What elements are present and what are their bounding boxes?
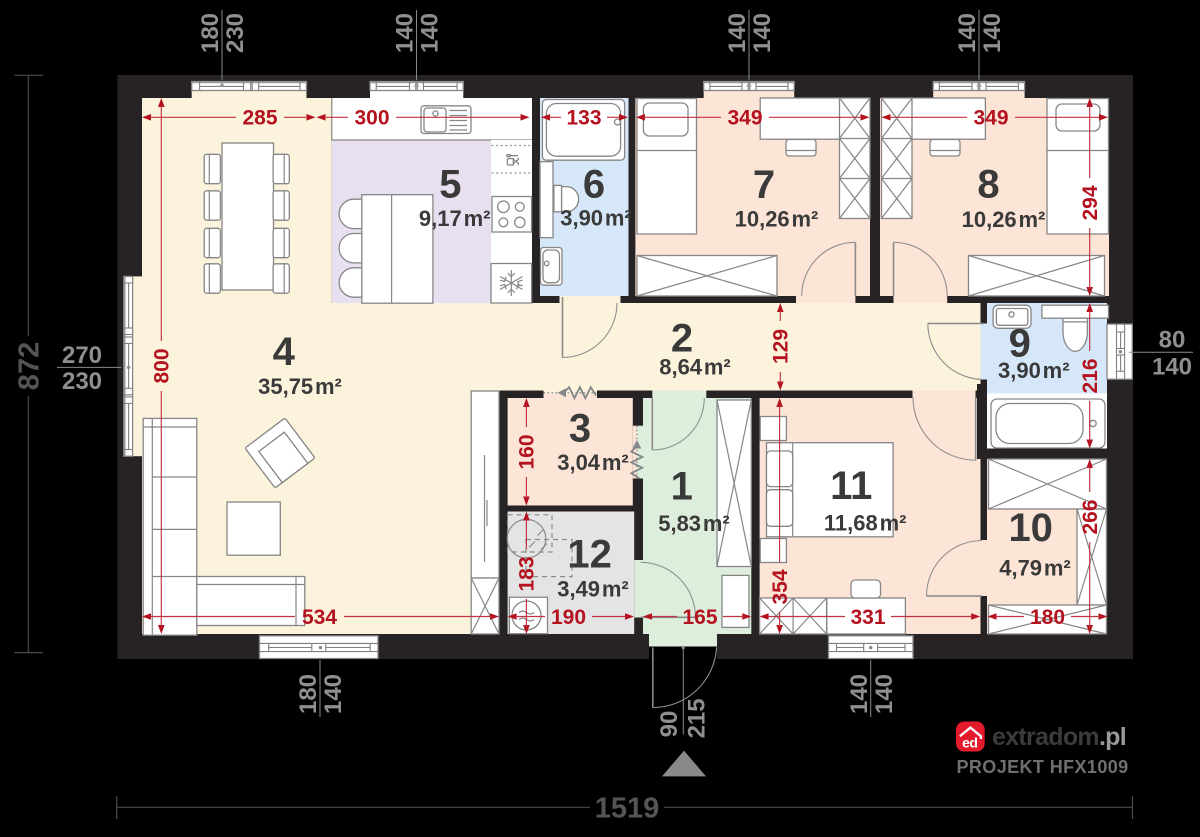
svg-text:190: 190 [551, 606, 586, 629]
svg-text:1519: 1519 [595, 793, 660, 825]
svg-text:215: 215 [684, 698, 711, 738]
svg-text:3,90 m²: 3,90 m² [998, 358, 1070, 383]
svg-text:9,17 m²: 9,17 m² [419, 206, 491, 231]
svg-text:133: 133 [566, 107, 601, 130]
svg-text:3,90 m²: 3,90 m² [560, 205, 632, 230]
svg-text:140: 140 [392, 13, 419, 53]
svg-text:216: 216 [1079, 358, 1102, 393]
svg-text:140: 140 [846, 674, 873, 714]
svg-text:140: 140 [1152, 354, 1192, 381]
svg-text:180: 180 [197, 13, 224, 53]
svg-text:10: 10 [1008, 506, 1053, 550]
svg-text:230: 230 [222, 13, 249, 53]
svg-text:349: 349 [727, 107, 762, 130]
svg-text:4: 4 [273, 330, 296, 374]
svg-text:10,26 m²: 10,26 m² [962, 207, 1046, 232]
svg-text:90: 90 [656, 711, 683, 738]
svg-text:11,68 m²: 11,68 m² [824, 510, 907, 535]
svg-text:3,04 m²: 3,04 m² [557, 450, 629, 475]
svg-text:7: 7 [753, 163, 775, 207]
svg-text:5: 5 [439, 162, 461, 206]
svg-text:4,79 m²: 4,79 m² [999, 555, 1071, 580]
svg-text:3,49 m²: 3,49 m² [557, 577, 629, 602]
svg-text:140: 140 [954, 13, 981, 53]
svg-text:534: 534 [302, 606, 337, 629]
svg-text:3: 3 [569, 406, 591, 450]
svg-text:285: 285 [242, 107, 277, 130]
svg-text:extradom.pl: extradom.pl [992, 723, 1126, 751]
svg-text:294: 294 [1079, 185, 1102, 220]
svg-text:165: 165 [682, 606, 717, 629]
svg-text:10,26 m²: 10,26 m² [735, 206, 819, 231]
svg-text:230: 230 [62, 368, 102, 395]
svg-text:300: 300 [354, 107, 389, 130]
svg-text:331: 331 [850, 606, 885, 629]
svg-text:349: 349 [973, 107, 1008, 130]
svg-text:8,64 m²: 8,64 m² [659, 354, 731, 379]
svg-text:11: 11 [830, 464, 872, 508]
svg-text:12: 12 [567, 532, 612, 576]
svg-text:8: 8 [977, 162, 999, 206]
svg-text:80: 80 [1159, 327, 1186, 354]
svg-text:35,75 m²: 35,75 m² [258, 374, 342, 399]
svg-text:800: 800 [151, 348, 174, 383]
svg-text:354: 354 [769, 569, 792, 604]
svg-text:140: 140 [871, 674, 898, 714]
svg-text:140: 140 [417, 13, 444, 53]
svg-text:140: 140 [979, 13, 1006, 53]
svg-text:140: 140 [320, 674, 347, 714]
svg-text:270: 270 [62, 342, 102, 369]
svg-text:872: 872 [14, 342, 46, 390]
svg-text:180: 180 [1030, 606, 1065, 629]
svg-text:ed: ed [962, 734, 977, 750]
svg-text:183: 183 [515, 556, 538, 591]
svg-text:1: 1 [671, 464, 693, 508]
svg-text:180: 180 [295, 674, 322, 714]
svg-text:6: 6 [583, 162, 605, 206]
svg-text:266: 266 [1079, 499, 1102, 534]
svg-text:140: 140 [724, 13, 751, 53]
svg-text:PROJEKT HFX1009: PROJEKT HFX1009 [957, 757, 1129, 777]
svg-text:5,83 m²: 5,83 m² [658, 511, 730, 536]
svg-text:160: 160 [515, 434, 538, 469]
svg-text:140: 140 [749, 13, 776, 53]
svg-text:129: 129 [769, 329, 792, 364]
